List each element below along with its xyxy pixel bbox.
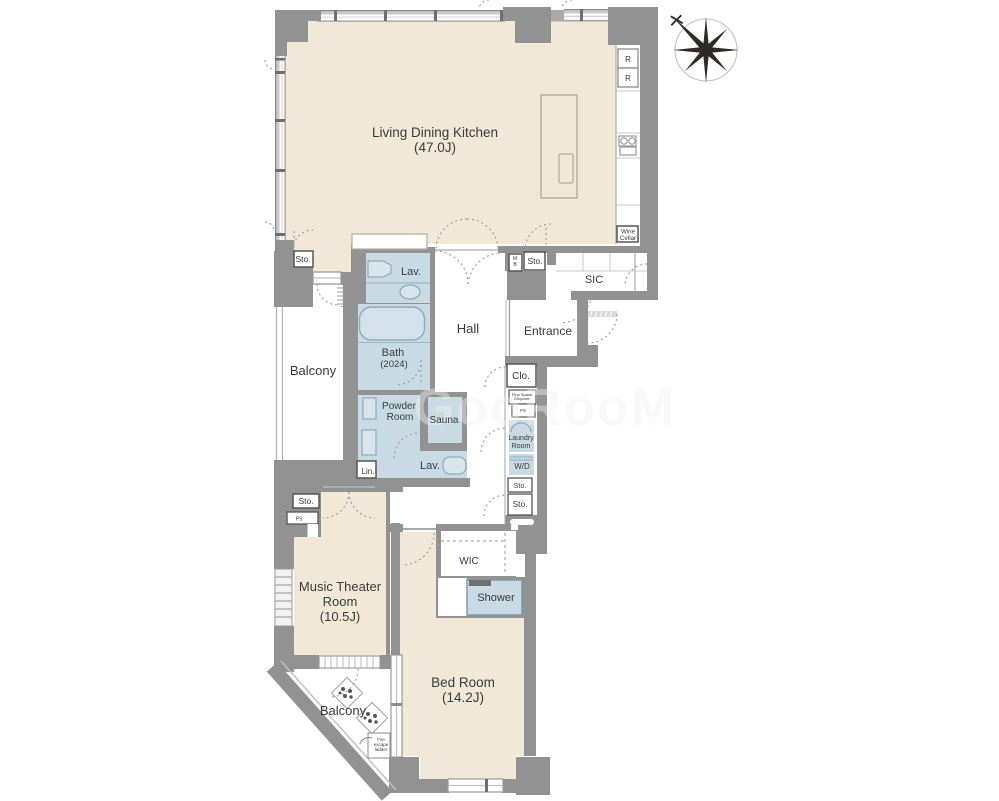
svg-text:PS: PS	[520, 408, 526, 413]
svg-text:Bath: Bath	[382, 347, 405, 359]
svg-text:Living Dining Kitchen: Living Dining Kitchen	[372, 125, 498, 140]
svg-text:Entrance: Entrance	[524, 324, 572, 338]
svg-text:Sto.: Sto.	[298, 496, 313, 506]
svg-text:WIC: WIC	[459, 556, 478, 567]
svg-text:Room: Room	[512, 443, 531, 450]
svg-text:Bed Room: Bed Room	[431, 675, 495, 690]
svg-text:R: R	[625, 55, 631, 64]
svg-text:Cellar: Cellar	[620, 235, 636, 242]
svg-text:R: R	[625, 74, 631, 83]
svg-text:Sto.: Sto.	[527, 256, 542, 266]
svg-text:Shower: Shower	[477, 592, 515, 604]
svg-text:Laundry: Laundry	[508, 435, 534, 442]
svg-text:Clo.: Clo.	[512, 371, 530, 382]
svg-text:GooRooM: GooRooM	[414, 379, 676, 437]
svg-text:Lav.: Lav.	[401, 266, 421, 278]
svg-text:Lav.: Lav.	[420, 460, 440, 472]
svg-text:Sto.: Sto.	[514, 483, 527, 490]
svg-text:(10.5J): (10.5J)	[320, 609, 360, 624]
svg-text:Room: Room	[323, 594, 358, 609]
svg-text:Sto.: Sto.	[512, 499, 527, 509]
svg-text:W/D: W/D	[514, 462, 530, 471]
svg-text:Balcony: Balcony	[290, 363, 337, 378]
svg-text:Disposer: Disposer	[514, 396, 530, 401]
svg-text:Powder: Powder	[382, 401, 417, 412]
svg-text:Music Theater: Music Theater	[299, 579, 382, 594]
svg-text:SIC: SIC	[585, 274, 603, 286]
svg-text:Sauna: Sauna	[430, 415, 459, 426]
svg-text:(47.0J): (47.0J)	[414, 140, 456, 155]
svg-text:ladder: ladder	[375, 747, 388, 752]
svg-text:Hall: Hall	[457, 321, 480, 336]
svg-text:Sto.: Sto.	[295, 254, 310, 264]
svg-text:Lin.: Lin.	[362, 467, 375, 476]
svg-text:Room: Room	[387, 412, 414, 423]
svg-text:Balcony: Balcony	[320, 703, 367, 718]
svg-text:PS: PS	[296, 517, 303, 523]
svg-text:(14.2J): (14.2J)	[442, 690, 484, 705]
svg-text:(2024): (2024)	[380, 359, 407, 370]
